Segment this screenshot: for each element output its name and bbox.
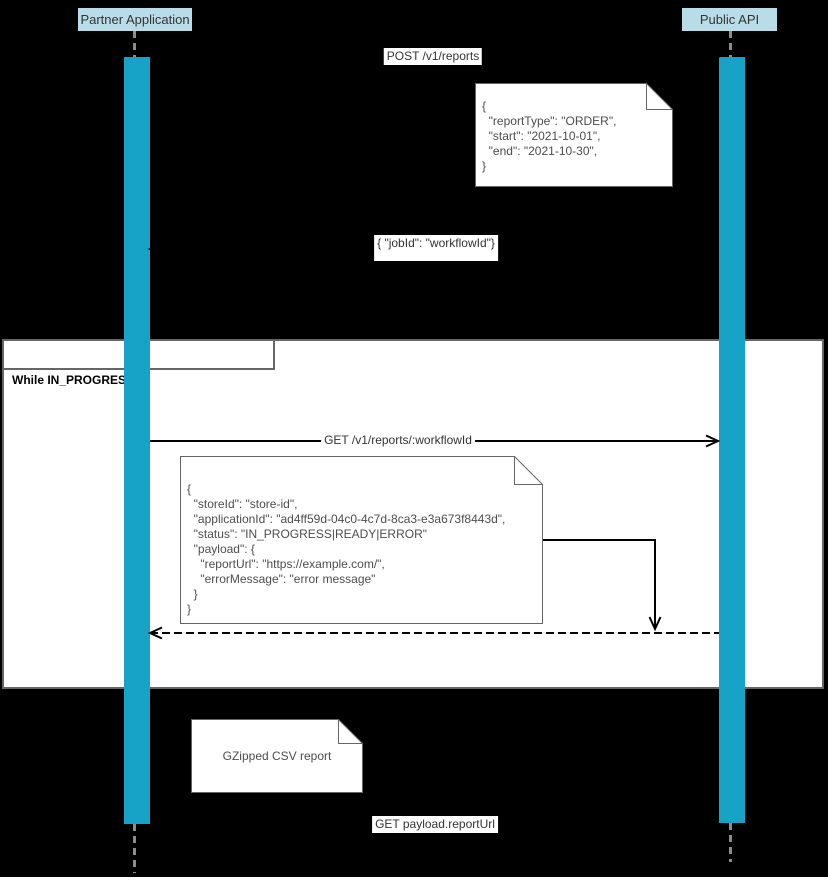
- request-body-text: { "reportType": "ORDER", "start": "2021-…: [482, 99, 669, 174]
- participant-partner-label: Partner Application: [80, 12, 189, 27]
- participant-public-api-label: Public API: [700, 12, 759, 27]
- message-post-label: POST /v1/reports: [384, 48, 482, 65]
- loop-condition-label: While IN_PROGRESS: [12, 373, 134, 387]
- participant-public-api: Public API: [682, 8, 777, 31]
- lifeline-partner-top: [133, 31, 136, 57]
- participant-partner-application: Partner Application: [78, 8, 192, 31]
- message-jobid-return-label: { "jobId": "workflowId"}: [374, 235, 498, 261]
- lifeline-partner-bottom: [133, 824, 136, 873]
- lifeline-public-api-top: [729, 31, 732, 57]
- sequence-diagram-canvas: While IN_PROGRESS: [0, 0, 828, 884]
- request-body-note: { "reportType": "ORDER", "start": "2021-…: [475, 83, 673, 187]
- response-body-note: { "storeId": "store-id", "applicationId"…: [180, 456, 543, 624]
- gzip-report-note: GZipped CSV report: [191, 719, 363, 793]
- response-body-text: { "storeId": "store-id", "applicationId"…: [187, 482, 539, 617]
- lifeline-public-api-bottom: [729, 823, 732, 862]
- activation-bar-public-api: [719, 57, 745, 823]
- message-get-report-label: GET /v1/reports/:workflowId: [321, 432, 475, 449]
- bottom-edge-strip: [0, 877, 828, 884]
- activation-bar-partner: [124, 57, 150, 824]
- gzip-report-text: GZipped CSV report: [191, 719, 363, 793]
- message-get-payload-label: GET payload.reportUrl: [372, 816, 498, 833]
